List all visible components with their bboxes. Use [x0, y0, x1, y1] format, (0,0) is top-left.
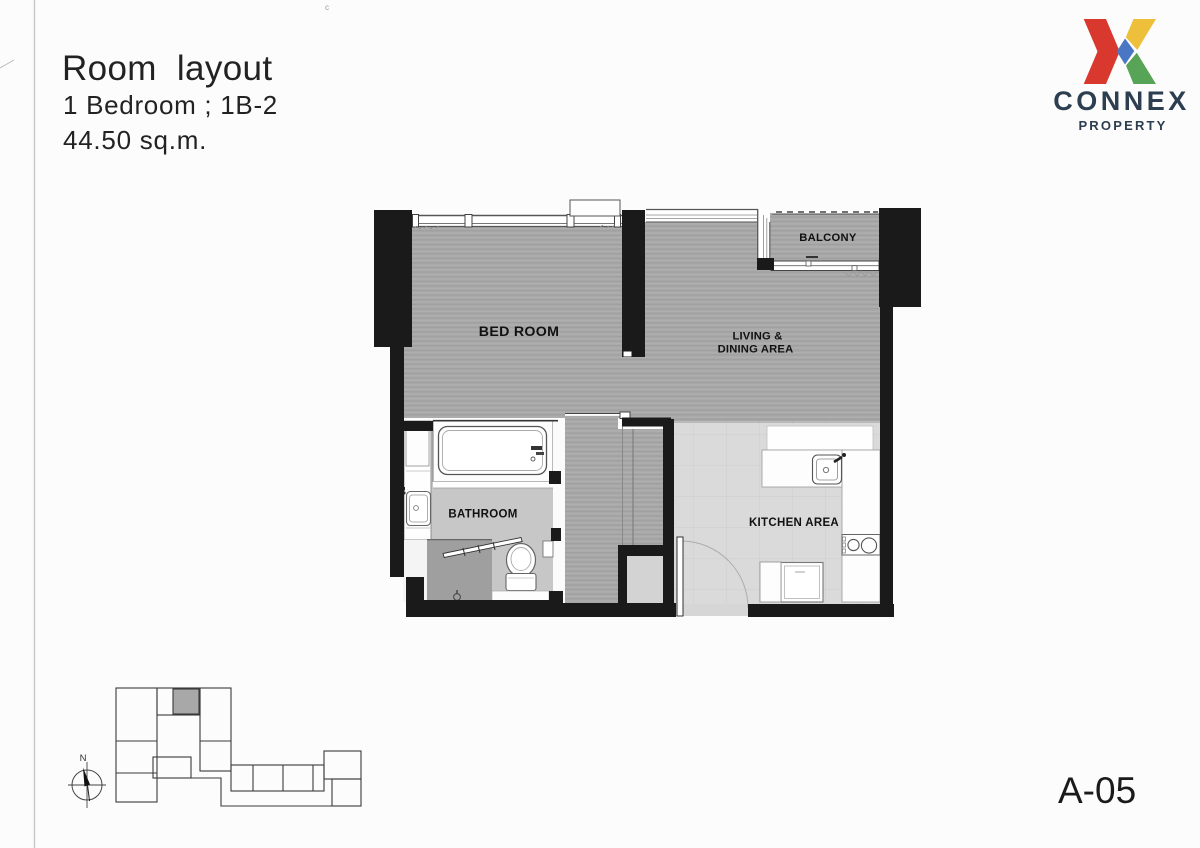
- svg-text:N: N: [80, 753, 87, 764]
- svg-text:c: c: [325, 3, 329, 12]
- svg-text:A-05: A-05: [1058, 770, 1136, 811]
- svg-text:LIVING &: LIVING &: [732, 331, 782, 343]
- svg-text:CONNEX: CONNEX: [1053, 86, 1190, 116]
- svg-text:BALCONY: BALCONY: [799, 232, 857, 244]
- svg-text:BED ROOM: BED ROOM: [479, 324, 559, 340]
- svg-text:DINING AREA: DINING AREA: [718, 344, 794, 356]
- svg-text:PROPERTY: PROPERTY: [1078, 118, 1167, 133]
- svg-text:BATHROOM: BATHROOM: [448, 509, 517, 521]
- svg-text:KITCHEN AREA: KITCHEN AREA: [749, 517, 839, 529]
